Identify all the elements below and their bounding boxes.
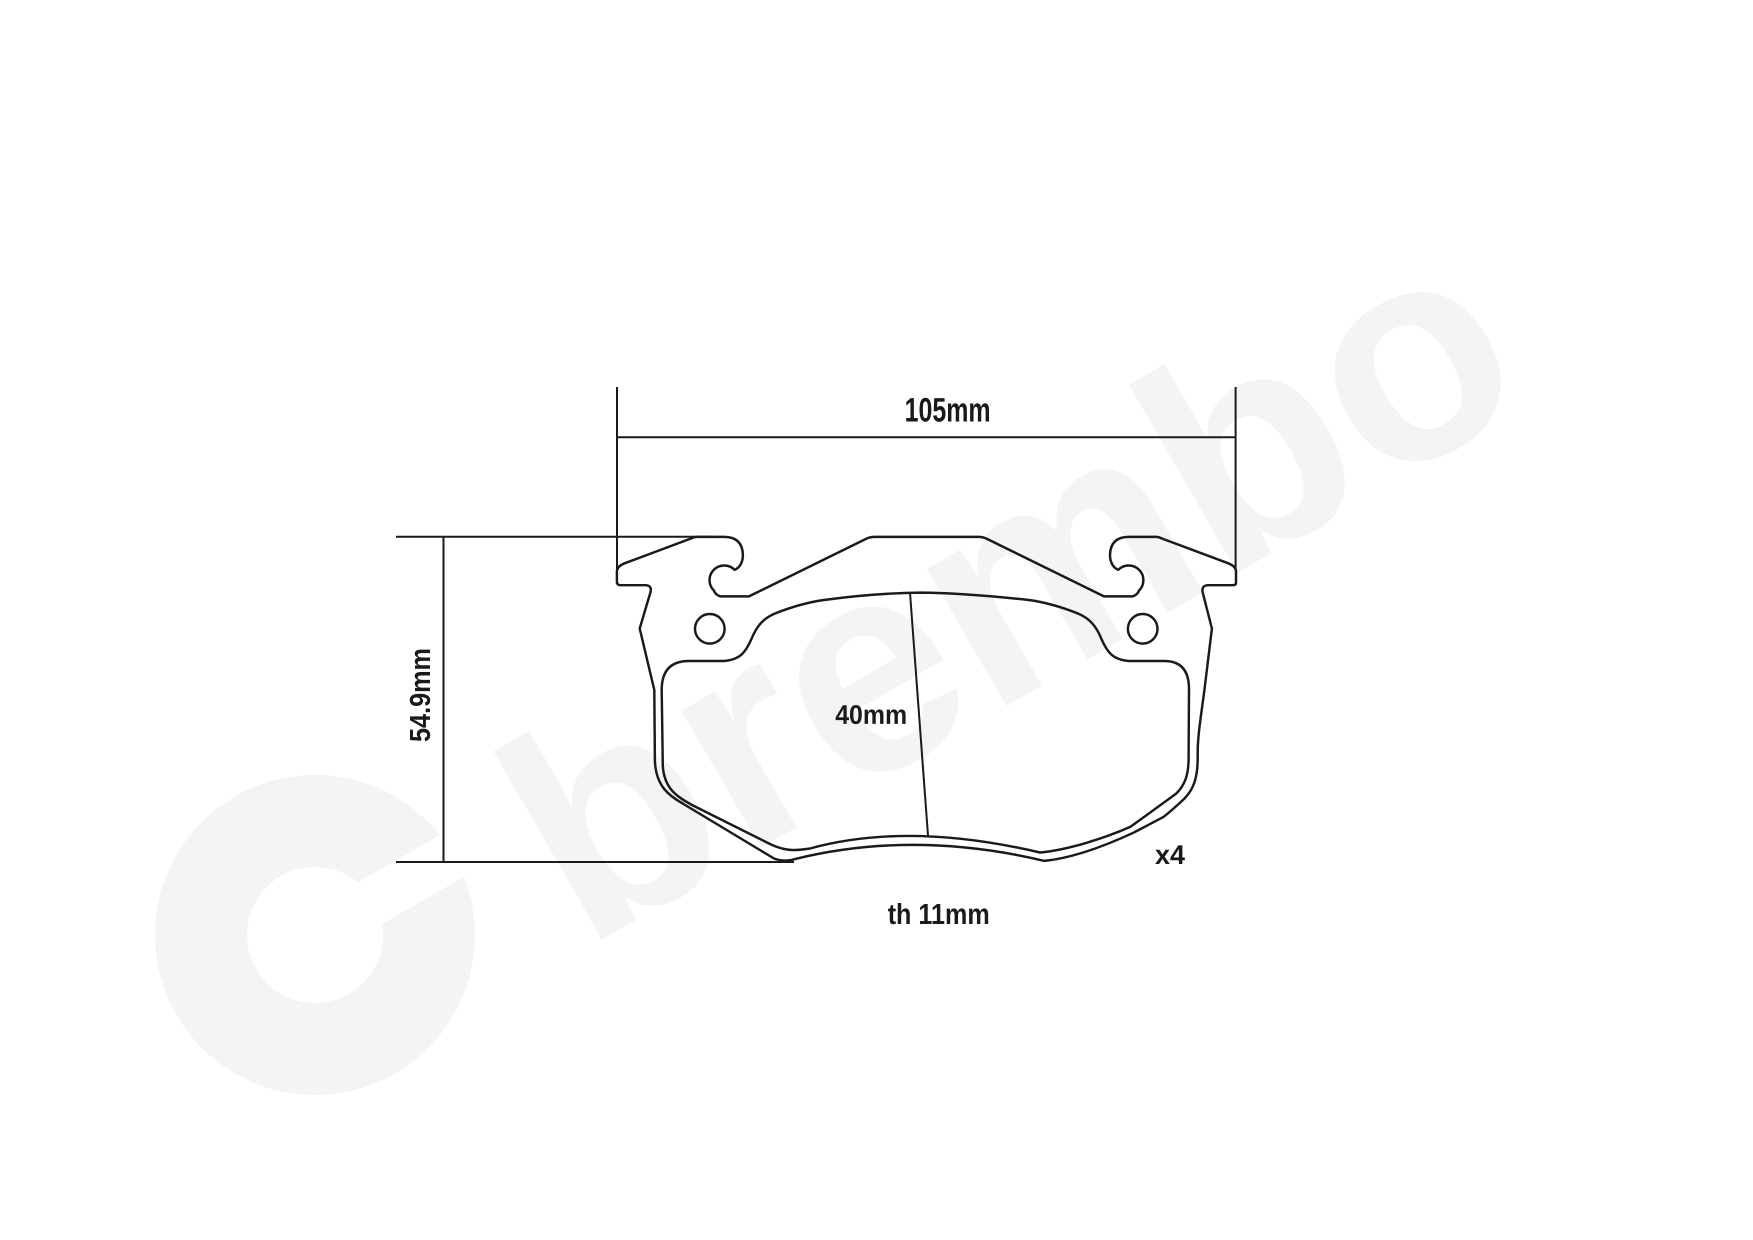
svg-text:54.9mm: 54.9mm [405,648,437,742]
svg-text:105mm: 105mm [905,391,991,429]
svg-text:th 11mm: th 11mm [888,899,990,931]
svg-text:x4: x4 [1155,840,1185,870]
svg-text:40mm: 40mm [835,700,907,730]
